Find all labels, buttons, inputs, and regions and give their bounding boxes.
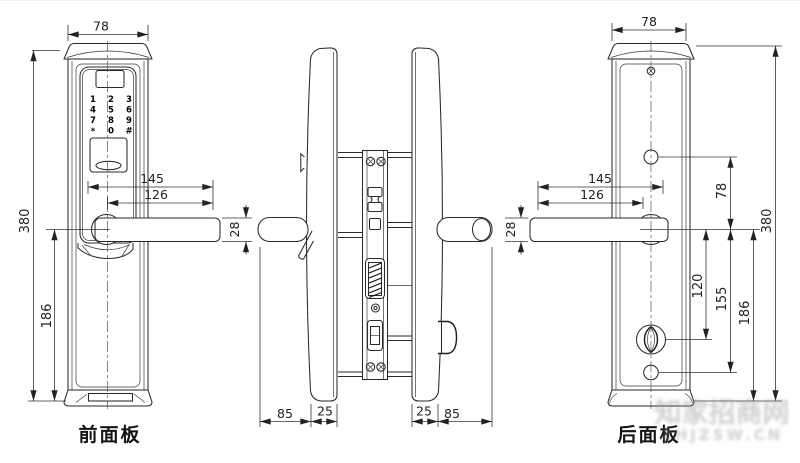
key-hash: #: [125, 127, 132, 137]
front-handle: [95, 218, 220, 242]
front-panel-profile: [307, 48, 338, 401]
dim-side-25-right: 25: [416, 404, 432, 419]
lock-technical-drawing: 1 2 3 4 5 6 7 8 9 * 0 #: [0, 0, 800, 463]
dim-back-28: 28: [503, 222, 518, 238]
dim-side-85-left: 85: [277, 406, 293, 421]
key-7: 7: [90, 116, 96, 126]
drawing-canvas: 1 2 3 4 5 6 7 8 9 * 0 #: [0, 1, 800, 463]
key-3: 3: [126, 95, 132, 105]
dim-front-width: 78: [93, 19, 109, 34]
dim-back-155: 155: [715, 287, 730, 312]
dim-side-25-left: 25: [317, 404, 333, 419]
latch-bolt: [366, 259, 385, 299]
key-5: 5: [108, 106, 114, 116]
dim-front-height: 380: [18, 209, 33, 234]
key-1: 1: [90, 95, 96, 105]
mortise-faceplate: [363, 151, 388, 380]
dim-back-height: 380: [760, 209, 775, 234]
dim-front-126: 126: [144, 187, 168, 202]
key-star: *: [91, 127, 96, 137]
back-handle-side: [437, 218, 492, 242]
key-6: 6: [126, 106, 132, 116]
fingerprint-cover-bump: [301, 154, 305, 172]
dim-front-145: 145: [140, 171, 164, 186]
dim-back-186: 186: [738, 301, 753, 326]
side-view: [258, 48, 492, 401]
dim-side-85-right: 85: [444, 406, 460, 421]
dim-front-28: 28: [227, 222, 242, 238]
front-panel-view: 1 2 3 4 5 6 7 8 9 * 0 #: [64, 41, 220, 446]
dim-back-145: 145: [588, 171, 612, 186]
dim-back-78: 78: [715, 183, 730, 200]
back-panel-view: 后面板: [530, 41, 694, 446]
key-0: 0: [108, 127, 114, 137]
dim-back-126: 126: [580, 187, 604, 202]
dim-back-width: 78: [641, 14, 657, 29]
key-2: 2: [108, 95, 114, 105]
front-handle-side: [258, 218, 308, 242]
back-panel-label: 后面板: [617, 423, 680, 446]
key-8: 8: [108, 116, 114, 126]
deadbolt: [368, 321, 383, 351]
key-9: 9: [126, 116, 132, 126]
thumbturn-side: [438, 322, 457, 354]
dim-front-186: 186: [40, 304, 55, 329]
dim-back-120: 120: [691, 274, 706, 299]
key-4: 4: [90, 106, 96, 116]
front-panel-label: 前面板: [78, 423, 141, 446]
